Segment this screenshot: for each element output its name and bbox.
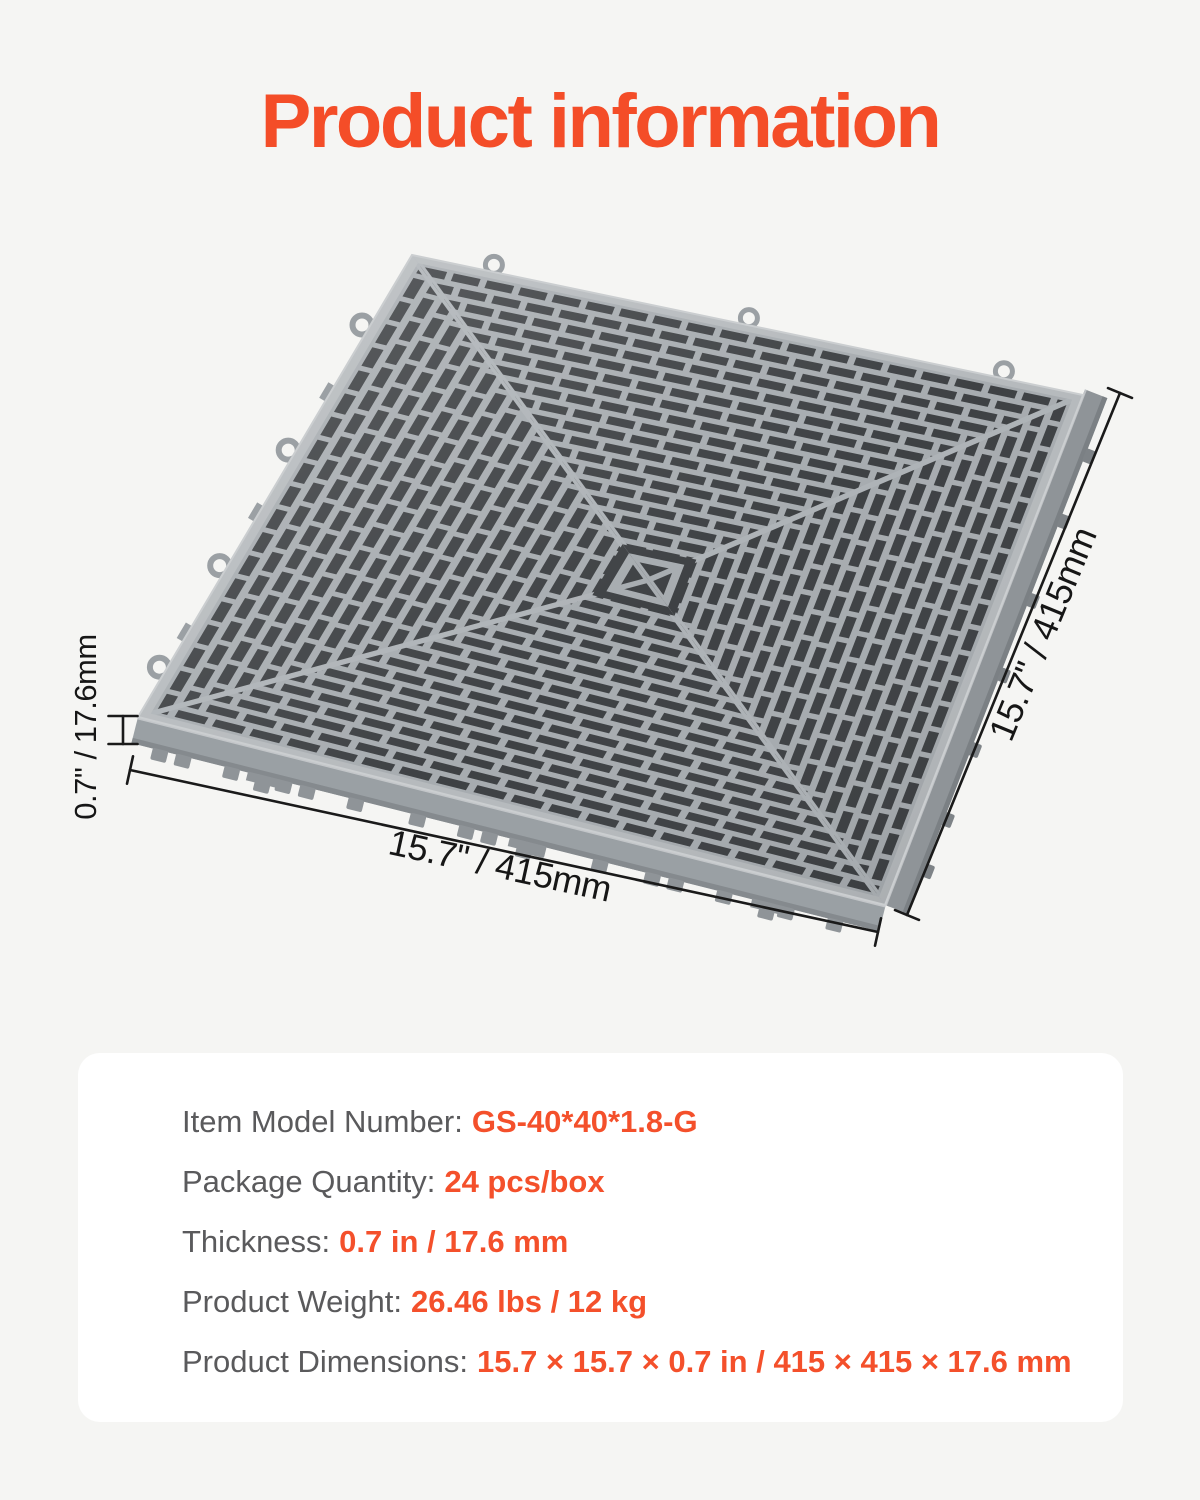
spec-label: Item Model Number: bbox=[182, 1104, 463, 1139]
spec-label: Package Quantity: bbox=[182, 1164, 435, 1199]
spec-label: Product Dimensions: bbox=[182, 1344, 468, 1379]
spec-value: GS-40*40*1.8-G bbox=[472, 1104, 698, 1139]
spec-row-weight: Product Weight:26.46 lbs / 12 kg bbox=[182, 1284, 1083, 1320]
thickness-dimension-label: 0.7" / 17.6mm bbox=[68, 634, 104, 819]
spec-card: Item Model Number:GS-40*40*1.8-G Package… bbox=[78, 1053, 1123, 1422]
spec-label: Thickness: bbox=[182, 1224, 330, 1259]
spec-label: Product Weight: bbox=[182, 1284, 402, 1319]
product-figure: 0.7" / 17.6mm 15.7" / 415mm 15.7" / 415m… bbox=[0, 0, 1200, 1060]
spec-value: 24 pcs/box bbox=[444, 1164, 604, 1199]
spec-row-thickness: Thickness:0.7 in / 17.6 mm bbox=[182, 1224, 1083, 1260]
spec-value: 26.46 lbs / 12 kg bbox=[411, 1284, 647, 1319]
spec-value: 15.7 × 15.7 × 0.7 in / 415 × 415 × 17.6 … bbox=[477, 1344, 1072, 1379]
spec-row-dimensions: Product Dimensions:15.7 × 15.7 × 0.7 in … bbox=[182, 1344, 1083, 1380]
spec-row-model: Item Model Number:GS-40*40*1.8-G bbox=[182, 1104, 1083, 1140]
spec-value: 0.7 in / 17.6 mm bbox=[339, 1224, 568, 1259]
spec-row-quantity: Package Quantity:24 pcs/box bbox=[182, 1164, 1083, 1200]
